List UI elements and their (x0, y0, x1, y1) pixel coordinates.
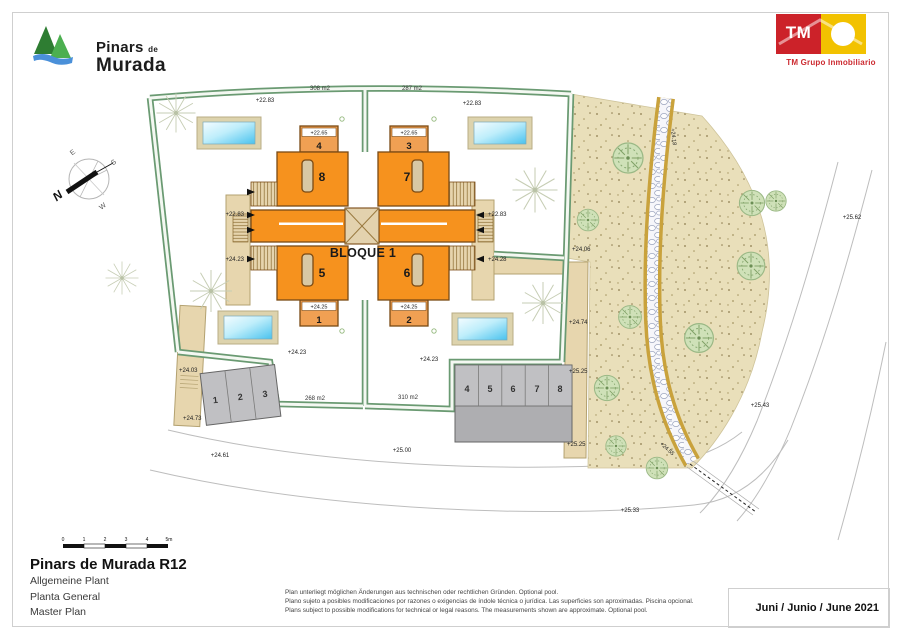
parking-left: 1 2 3 (200, 365, 281, 426)
pool-bottom-right (452, 313, 513, 345)
brand-line1: Pinars (96, 39, 144, 56)
brand-line2: Murada (96, 56, 166, 75)
building-bloque1 (251, 126, 475, 326)
compass-rose: N E S W (50, 148, 119, 211)
skylight (412, 160, 423, 192)
disclaimer-de: Plan unterliegt möglichen Änderungen aus… (285, 588, 694, 597)
disclaimer-es: Plano sujeto a posibles modificaciones p… (285, 597, 694, 606)
elev-label: +22.83 (225, 212, 244, 218)
elev-label: +22.83 (256, 98, 275, 104)
plan-date: Juni / Junio / June 2021 (756, 602, 889, 614)
path-crossing (687, 461, 759, 515)
parking-right: 4 5 6 7 8 (455, 365, 572, 442)
elev-label: +25.62 (843, 215, 862, 221)
scale-tick: 1 (83, 537, 86, 543)
compass-s: S (110, 158, 118, 167)
elev-label: +24.61 (211, 453, 230, 459)
page-title: Pinars de Murada R12 (30, 556, 187, 573)
elev-label: +25.43 (751, 403, 770, 409)
pool-top-left (197, 117, 261, 149)
pool-bottom-left (218, 311, 278, 344)
brand-text: Pinars de Murada (96, 40, 166, 75)
terrace-elev: +24.25 (311, 305, 328, 311)
elev-label: +25.33 (621, 508, 640, 514)
stall-label: 8 (557, 384, 562, 394)
tm-logo: TM TM Grupo Inmobiliario (775, 14, 887, 70)
scale-tick: 0 (62, 537, 65, 543)
unit-label: 8 (319, 170, 326, 184)
elev-label: +24.23 (225, 257, 244, 263)
area-label: 268 m2 (305, 396, 326, 402)
elev-label: +22.83 (488, 212, 507, 218)
area-label: 310 m2 (398, 395, 419, 401)
stairs (449, 182, 475, 206)
elev-label: +22.83 (463, 101, 482, 107)
unit-label: 6 (404, 266, 411, 280)
disclaimer-en: Plans subject to possible modifications … (285, 606, 694, 615)
tm-caption: TM Grupo Inmobiliario (763, 58, 899, 67)
terrace-num: 3 (406, 141, 411, 152)
area-label: 308 m2 (310, 86, 331, 92)
elev-label: +24.06 (572, 247, 591, 253)
pool-top-right (468, 117, 532, 149)
mountain-icon (30, 20, 76, 68)
roof-icon (775, 14, 866, 54)
area-label: 287 m2 (402, 86, 423, 92)
stairs (251, 182, 277, 206)
terrace-elev: +24.25 (401, 305, 418, 311)
plan-sheet: 1 2 3 4 5 6 7 8 (0, 0, 900, 636)
scale-tick: 2 (104, 537, 107, 543)
north-needle (67, 172, 97, 192)
skylight (302, 254, 313, 286)
skylight (412, 254, 423, 286)
brand-de: de (148, 45, 158, 54)
scale-bar: 0 1 2 3 4 5m (60, 535, 190, 553)
compass-w: W (98, 202, 108, 212)
scale-tick: 3 (125, 537, 128, 543)
unit-label: 5 (319, 266, 326, 280)
elev-label: +25.25 (567, 442, 586, 448)
title-line-en: Master Plan (30, 606, 187, 620)
stall-label: 4 (464, 384, 469, 394)
elev-label: +24.74 (569, 320, 588, 326)
elev-label: +24.23 (420, 357, 439, 363)
disclaimer: Plan unterliegt möglichen Änderungen aus… (285, 588, 694, 615)
elev-label: +24.03 (179, 368, 198, 374)
unit-label: 7 (404, 170, 411, 184)
terrace-elev: +22.65 (401, 131, 418, 137)
title-block: Pinars de Murada R12 Allgemeine Plant Pl… (30, 556, 187, 620)
scale-tick: 5m (166, 537, 173, 543)
stairs (251, 246, 277, 270)
skylight (302, 160, 313, 192)
title-line-es: Planta General (30, 591, 187, 605)
elev-label: +25.25 (569, 369, 588, 375)
terrace-elev: +22.65 (311, 131, 328, 137)
elev-label: +24.28 (488, 257, 507, 263)
date-box: Juni / Junio / June 2021 (728, 588, 890, 628)
title-line-de: Allgemeine Plant (30, 575, 187, 589)
scale-tick: 4 (146, 537, 149, 543)
stall-label: 6 (510, 384, 515, 394)
stall-label: 5 (487, 384, 492, 394)
pinars-logo: Pinars de Murada (30, 16, 230, 74)
terrace-num: 1 (316, 315, 322, 326)
elev-label: +24.73 (183, 416, 202, 422)
stall-label: 7 (534, 384, 539, 394)
compass-n: N (50, 187, 66, 204)
elev-label: +24.23 (288, 350, 307, 356)
stairs (449, 246, 475, 270)
block-label: BLOQUE 1 (330, 246, 396, 260)
terrace-num: 4 (316, 141, 322, 152)
compass-e: E (69, 148, 77, 157)
elev-label: +25.00 (393, 448, 412, 454)
terrace-num: 2 (406, 315, 411, 326)
